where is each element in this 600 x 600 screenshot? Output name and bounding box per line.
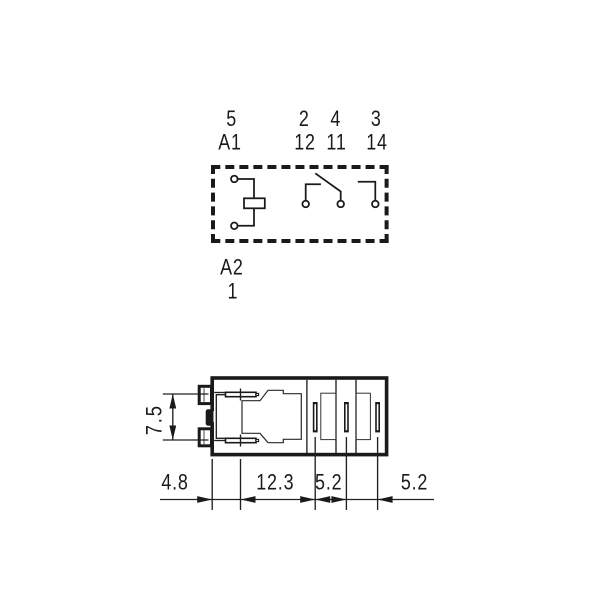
svg-text:14: 14 (366, 131, 388, 155)
svg-text:5: 5 (226, 107, 237, 131)
svg-text:4.8: 4.8 (161, 471, 188, 495)
svg-text:A1: A1 (218, 131, 242, 155)
svg-text:1: 1 (228, 280, 239, 304)
svg-text:4: 4 (330, 107, 341, 131)
svg-text:5.2: 5.2 (401, 471, 428, 495)
svg-text:7.5: 7.5 (142, 404, 167, 435)
svg-text:11: 11 (326, 131, 346, 155)
svg-text:12.3: 12.3 (256, 471, 294, 495)
svg-text:12: 12 (294, 131, 316, 155)
svg-text:3: 3 (371, 107, 382, 131)
svg-text:A2: A2 (220, 256, 244, 280)
svg-text:5.2: 5.2 (315, 471, 342, 495)
svg-text:2: 2 (299, 107, 310, 131)
